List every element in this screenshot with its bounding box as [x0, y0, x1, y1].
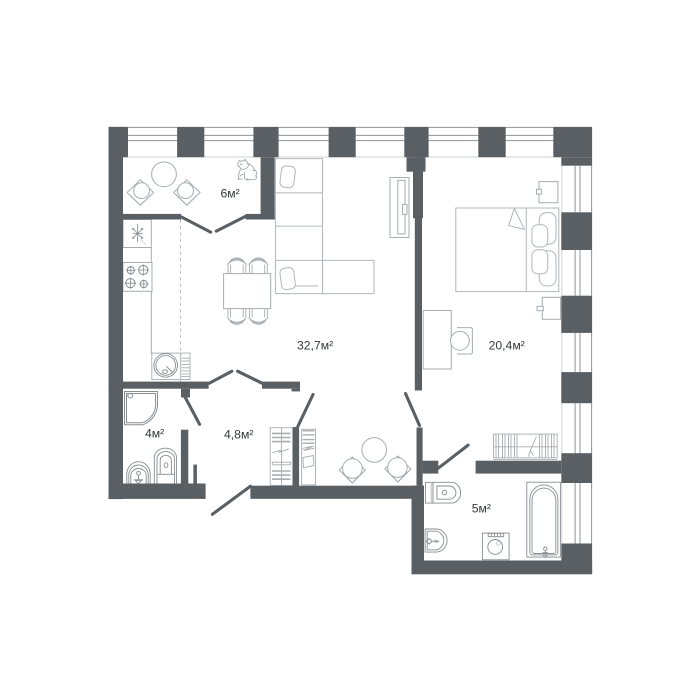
- svg-text:4,8м²: 4,8м²: [224, 428, 253, 442]
- svg-text:6м²: 6м²: [221, 186, 240, 200]
- svg-text:20,4м²: 20,4м²: [489, 338, 525, 352]
- svg-text:4м²: 4м²: [145, 427, 164, 441]
- svg-text:5м²: 5м²: [472, 501, 491, 515]
- svg-text:32,7м²: 32,7м²: [297, 338, 333, 352]
